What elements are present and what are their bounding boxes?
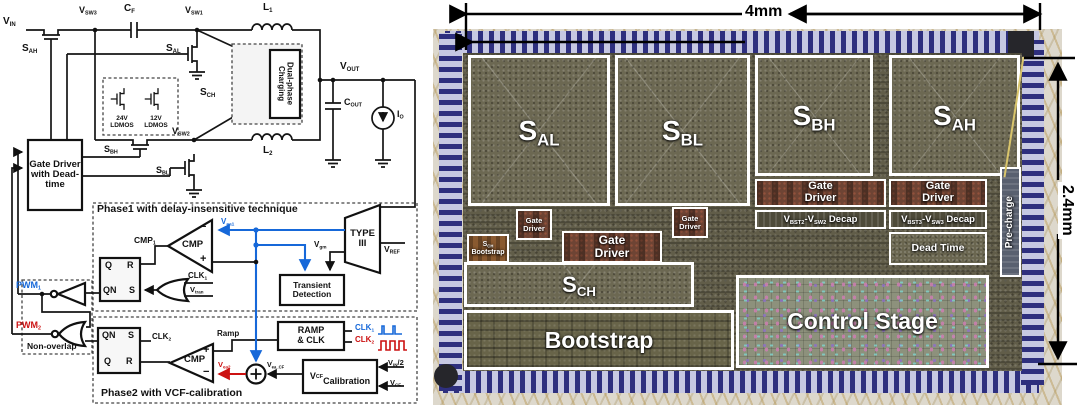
label-pwm1: PWM1 — [16, 281, 41, 291]
label-cf: CF — [124, 4, 135, 15]
decap2-label: VBST2-VSW2 Decap — [784, 215, 858, 225]
label-die-height: 2.4mm — [1058, 182, 1076, 239]
label-ff1-qn: QN — [103, 286, 117, 296]
sch-label: SCH — [562, 273, 596, 296]
label-clk2: CLK2 — [152, 333, 171, 342]
block-sbh-label: SBH — [793, 101, 836, 130]
bond-pad-col-left — [439, 33, 462, 391]
label-sbl: SBL — [156, 166, 169, 176]
block-sbl-label: SBL — [662, 116, 703, 145]
label-cmp1-name: CMP — [182, 240, 203, 250]
label-vtran: Vtran — [190, 286, 204, 294]
decap3-label: VBST3-VSW3 Decap — [901, 215, 975, 225]
label-ramp-clk: RAMP& CLK — [279, 324, 343, 348]
block-pre-charge: Pre-charge — [1000, 167, 1021, 277]
block-decap-vbst3: VBST3-VSW3 Decap — [889, 210, 987, 229]
label-ff2-s: S — [128, 331, 134, 341]
block-gate-driver-small-2: GateDriver — [672, 207, 708, 238]
block-bootstrap: Bootstrap — [464, 310, 734, 370]
label-die-width: 4mm — [742, 3, 785, 21]
label-clk1-legend: CLK1 — [355, 324, 374, 333]
label-vsw3: VSW3 — [79, 6, 97, 16]
label-vea-cf: Vea_CF — [267, 362, 284, 370]
block-sch-bootstrap: SCHBootstrap — [467, 234, 509, 263]
label-cmp2-name: CMP — [184, 355, 205, 365]
die-core: SAL SBL SBH SAH GateDriver GateDriver VB… — [463, 53, 1022, 371]
label-clk2-legend: CLK2 — [355, 336, 374, 345]
label-transient-detection: Transient Detection — [281, 277, 343, 303]
label-vea1: Vea1 — [221, 218, 234, 227]
block-control-stage: Control Stage — [736, 275, 989, 368]
sch-bootstrap-label: SCHBootstrap — [471, 241, 504, 256]
label-ff1-q: Q — [105, 261, 112, 271]
label-vcf: VCF — [390, 379, 401, 387]
label-l1: L1 — [263, 3, 272, 14]
label-cmp1-minus: − — [200, 222, 206, 234]
gate-driver-label: GateDriver — [922, 181, 954, 204]
control-stage-label: Control Stage — [787, 309, 938, 333]
label-cmp2-minus: − — [203, 367, 209, 379]
label-ldmos-12v: 12VLDMOS — [140, 111, 172, 133]
label-non-overlap: Non-overlap — [27, 342, 77, 351]
dead-time-label: Dead Time — [912, 243, 965, 254]
label-dual-phase-charging: Dual-phase Charging — [271, 51, 299, 117]
label-vin: VIN — [3, 17, 16, 28]
block-gate-driver-small-1: GateDriver — [516, 209, 552, 240]
label-type3: TYPE III — [347, 216, 378, 262]
gate-driver-label: GateDriver — [523, 217, 545, 233]
block-sah: SAH — [889, 55, 1020, 176]
bond-pad-row-bottom — [443, 371, 1039, 393]
bootstrap-label: Bootstrap — [545, 328, 654, 352]
label-sch: SCH — [200, 88, 215, 99]
label-sbh: SBH — [104, 145, 118, 155]
label-ff1-r: R — [127, 261, 134, 271]
label-vea2: Vea2 — [218, 361, 231, 369]
block-sbl: SBL — [615, 55, 750, 206]
label-clk1: CLK1 — [188, 272, 207, 281]
label-cmp1: CMP1 — [134, 236, 156, 245]
label-ff1-s: S — [129, 286, 135, 296]
label-sah: SAH — [22, 44, 37, 55]
label-sal: SAL — [166, 44, 181, 55]
label-gate-driver-dead-time: Gate Driver with Dead-time — [29, 145, 81, 205]
label-vsw2: VSW2 — [172, 127, 190, 137]
label-phase2-title: Phase2 with VCF-calibration — [101, 388, 242, 399]
label-io: IO — [397, 110, 404, 120]
label-ff2-r: R — [126, 357, 133, 367]
label-cout: COUT — [344, 98, 362, 108]
block-sal-label: SAL — [518, 116, 559, 145]
label-ff2-q: Q — [104, 357, 111, 367]
label-vgm: Vgm — [314, 241, 327, 250]
label-ldmos-24v: 24VLDMOS — [106, 111, 138, 133]
block-sbh: SBH — [755, 55, 873, 176]
gate-driver-label: GateDriver — [805, 181, 837, 204]
block-dead-time: Dead Time — [889, 232, 987, 265]
block-gate-driver-sbh: GateDriver — [755, 179, 886, 207]
block-decap-vbst2: VBST2-VSW2 Decap — [755, 210, 886, 229]
bond-pad-row-top — [445, 31, 1039, 53]
label-pwm2: PWM2 — [16, 321, 41, 331]
label-vin-half: VIN/2 — [388, 359, 404, 367]
label-vref: VREF — [384, 245, 400, 254]
block-gate-driver-sah: GateDriver — [889, 179, 987, 207]
block-sah-label: SAH — [933, 101, 976, 130]
figure: SAL SBL SBH SAH GateDriver GateDriver VB… — [0, 0, 1077, 411]
die-corner-blob — [434, 364, 458, 388]
label-vcf-calibration: VCFCalibration — [304, 362, 376, 391]
label-ramp: Ramp — [217, 330, 239, 339]
label-cmp1-plus: + — [200, 254, 206, 266]
block-sal: SAL — [468, 55, 610, 206]
pre-charge-label: Pre-charge — [1005, 196, 1016, 248]
block-gate-driver-mid: GateDriver — [562, 231, 662, 263]
label-phase1-title: Phase1 with delay-insensitive technique — [97, 204, 298, 215]
label-vsw1: VSW1 — [185, 6, 203, 16]
label-cmp2-plus: + — [203, 345, 209, 357]
label-ff2-qn: QN — [102, 331, 116, 341]
block-sch: SCH — [464, 262, 694, 307]
gate-driver-label: GateDriver — [595, 234, 630, 259]
gate-driver-label: GateDriver — [679, 215, 701, 231]
bond-pad-col-right — [1021, 40, 1044, 385]
label-l2: L2 — [263, 146, 272, 157]
label-vout: VOUT — [340, 62, 359, 73]
